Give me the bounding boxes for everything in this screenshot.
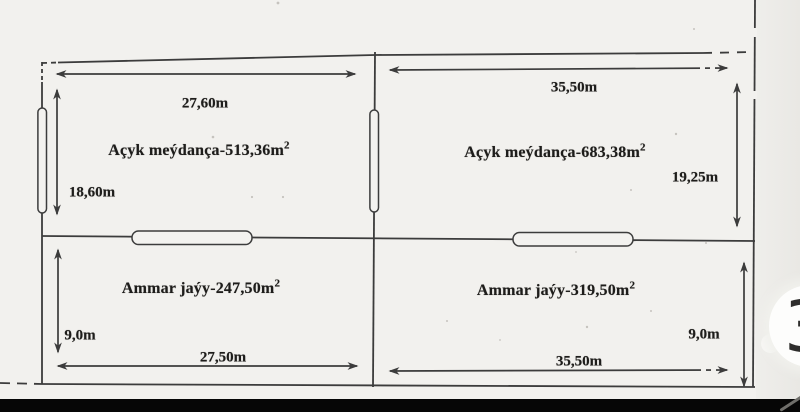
dim-width-warehouse-right: 35,50m [556,354,602,371]
plot-label-text: Ammar jaýy-247,50m [122,280,275,297]
dim-width-open-area-right: 35,50m [551,80,597,97]
dim-width-open-area-left: 27,60m [182,96,228,113]
door-left-wall [38,108,47,213]
plot-label-warehouse-left: Ammar jaýy-247,50m2 [122,280,280,298]
dim-height-warehouse-left: 9,0m [64,328,95,345]
plot-label-text: Açyk meýdança-513,36m [108,142,284,159]
door-middle-wall [370,110,379,212]
square-meter-sup: 2 [284,140,290,152]
square-meter-sup: 2 [640,142,646,154]
door-symbols [38,108,633,246]
plot-label-text: Ammar jaýy-319,50m [477,282,630,299]
dim-height-warehouse-right: 9,0m [688,327,719,344]
arrow-width-open-area-right [390,68,727,70]
dimension-arrows [57,68,744,386]
scanned-site-plan: Açyk meýdança-513,36m2 Açyk meýdança-683… [0,0,800,412]
letterbox-bar [0,399,800,412]
plot-label-text: Açyk meýdança-683,38m [464,144,640,161]
plot-label-open-area-right: Açyk meýdança-683,38m2 [464,144,645,162]
plan-drawing [0,0,800,412]
dim-width-warehouse-left: 27,50m [200,350,246,367]
door-divider-left [132,231,252,245]
square-meter-sup: 2 [274,278,280,290]
bubble-glyph: 3 [784,287,800,367]
scan-line-gaps [750,28,757,99]
door-divider-right [513,233,633,247]
plot-label-open-area-left: Açyk meýdança-513,36m2 [108,142,289,160]
dim-height-open-area-left: 18,60m [69,185,115,202]
dim-height-open-area-right: 19,25m [672,170,718,187]
square-meter-sup: 2 [629,280,635,292]
plot-label-warehouse-right: Ammar jaýy-319,50m2 [477,282,635,300]
